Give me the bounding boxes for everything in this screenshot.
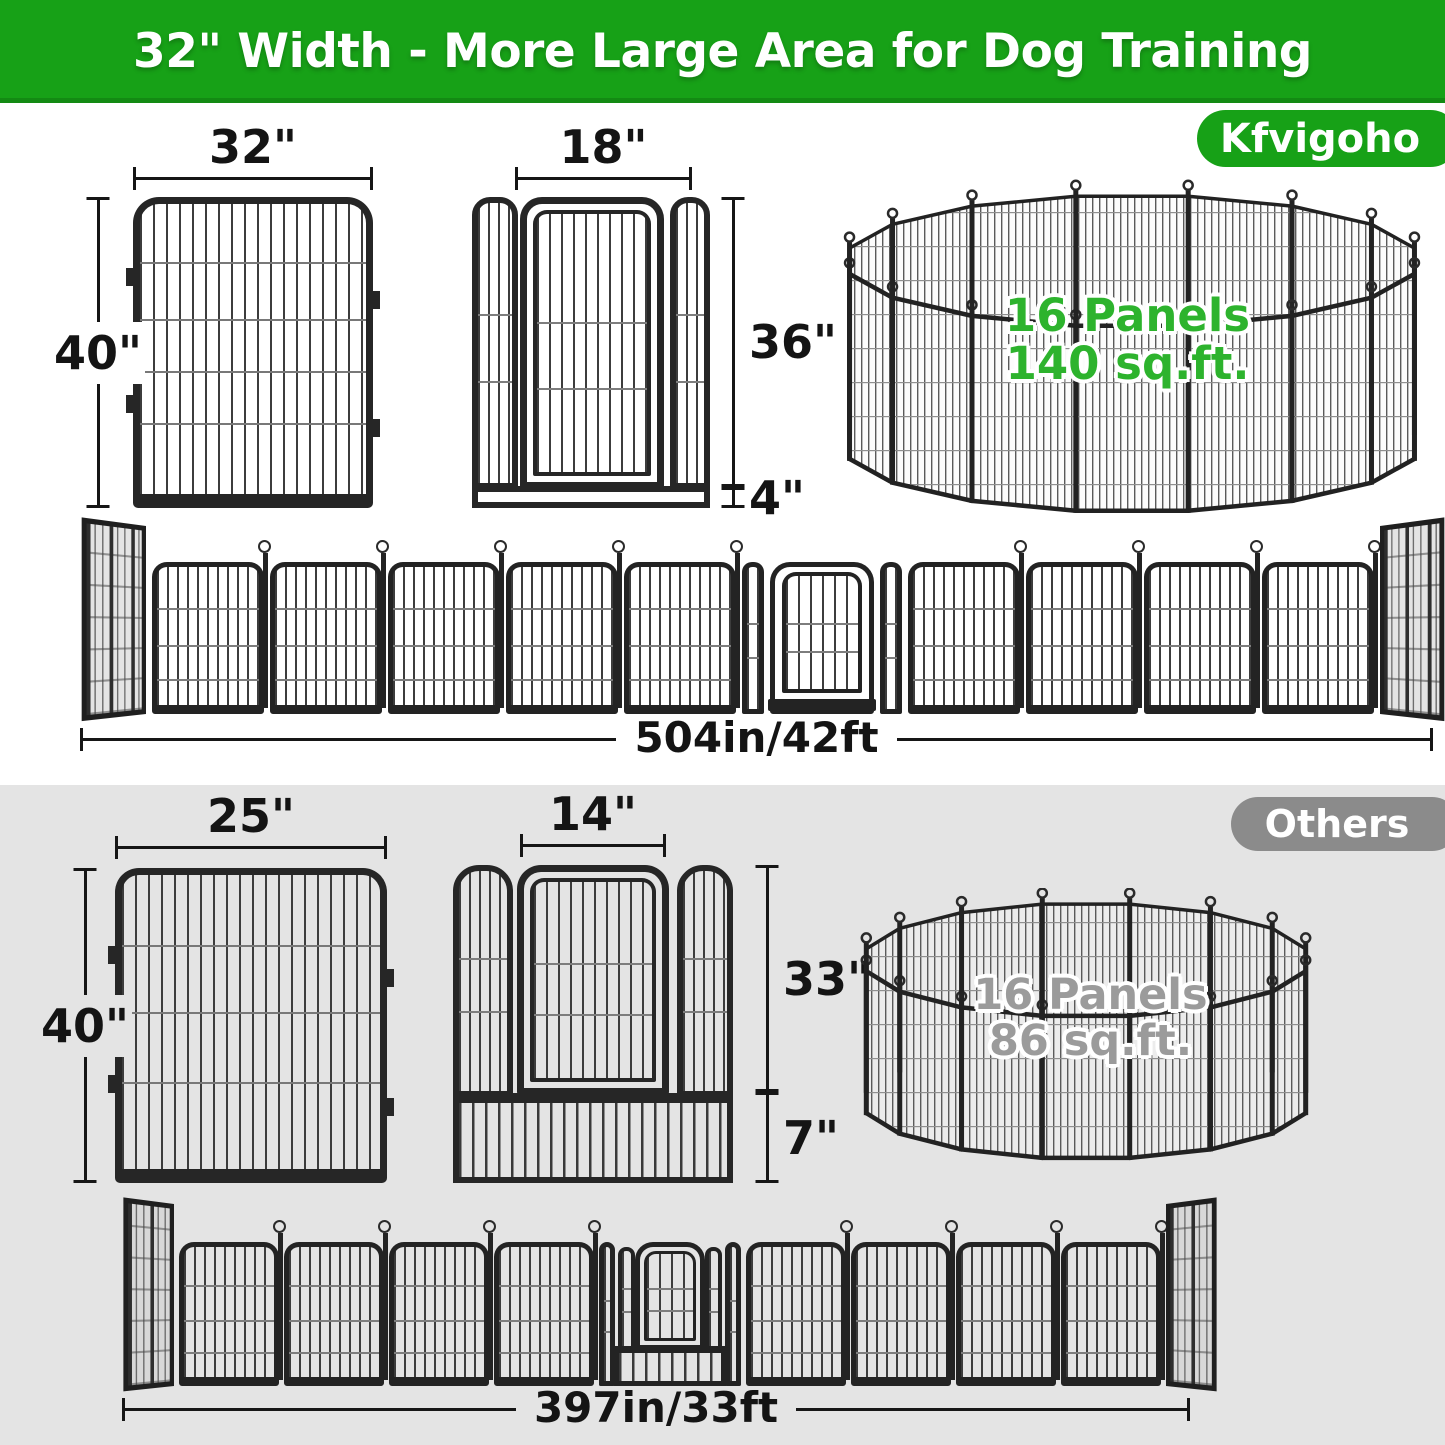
fence-panel — [908, 562, 1020, 714]
fence-panel — [851, 1242, 951, 1386]
kfvigoho-fence-row — [76, 522, 1444, 714]
hinge — [126, 268, 135, 286]
others-row-length-label: 397in/33ft — [516, 1387, 796, 1429]
fence-perspective-wall — [82, 517, 146, 721]
door-bottom-rail — [768, 699, 876, 711]
kfvigoho-door-height-label: 36" — [749, 319, 837, 365]
dimension-line — [520, 844, 666, 847]
door-bottom-rail — [472, 486, 710, 508]
kfvigoho-panel-diagram — [133, 197, 373, 508]
hinge — [385, 969, 394, 987]
fence-panel — [152, 562, 264, 714]
fence-panel — [956, 1242, 1056, 1386]
door-side-strip — [453, 865, 513, 1097]
kfvigoho-panel-height-label: 40" — [51, 322, 145, 384]
others-pen-label: 16 Panels 86 sq.ft. — [918, 972, 1263, 1064]
fence-panel — [494, 1242, 594, 1386]
fence-panel — [1144, 562, 1256, 714]
fence-perspective-wall — [123, 1197, 174, 1391]
product-infographic: 32" Width - More Large Area for Dog Trai… — [0, 0, 1445, 1445]
hinge — [371, 291, 380, 309]
others-pen-area-label: 86 sq.ft. — [918, 1018, 1263, 1064]
fence-connector-strip — [880, 562, 902, 714]
fence-panel — [270, 562, 382, 714]
fence-panel — [1026, 562, 1138, 714]
others-panel-diagram — [115, 868, 387, 1183]
others-panel-width-label: 25" — [115, 793, 387, 839]
kfvigoho-pen-label: 16 Panels 140 sq.ft. — [955, 292, 1300, 388]
banner: 32" Width - More Large Area for Dog Trai… — [0, 0, 1445, 103]
door-side-strip — [618, 1247, 635, 1350]
others-pen-panels-label: 16 Panels — [918, 972, 1263, 1018]
kfvigoho-row-length-dimension: 504in/42ft — [80, 716, 1433, 762]
others-badge-label: Others — [1265, 802, 1410, 846]
door-frame — [520, 197, 664, 489]
others-door-width-dimension: 14" — [520, 791, 666, 847]
door-frame — [517, 865, 669, 1095]
dimension-line — [766, 1092, 769, 1183]
fence-door-panel — [620, 1242, 720, 1386]
fence-door-panel — [770, 562, 874, 714]
kfvigoho-pen-area-label: 140 sq.ft. — [955, 340, 1300, 388]
door-leaf — [782, 572, 862, 693]
fence-connector-strip — [725, 1242, 741, 1386]
hinge — [126, 395, 135, 413]
fence-panel — [389, 1242, 489, 1386]
hinge — [385, 1098, 394, 1116]
dimension-line — [897, 738, 1430, 741]
others-door-diagram — [453, 865, 733, 1183]
dimension-line — [133, 177, 373, 180]
fence-panel — [179, 1242, 279, 1386]
fence-panel — [284, 1242, 384, 1386]
door-base-section — [614, 1346, 726, 1386]
fence-panel — [506, 562, 618, 714]
kfvigoho-row-length-label: 504in/42ft — [616, 717, 896, 759]
banner-title: 32" Width - More Large Area for Dog Trai… — [133, 24, 1312, 79]
others-door-width-label: 14" — [520, 791, 666, 837]
fence-panel — [624, 562, 736, 714]
fence-connector-strip — [742, 562, 764, 714]
hinge — [108, 1075, 117, 1093]
fence-perspective-wall — [1380, 517, 1444, 721]
dimension-line — [766, 865, 769, 1092]
others-row-length-dimension: 397in/33ft — [122, 1386, 1190, 1432]
fence-panel — [1061, 1242, 1161, 1386]
dimension-line — [83, 738, 616, 741]
door-side-strip — [670, 197, 710, 489]
dimension-line — [515, 177, 692, 180]
dimension-line — [125, 1408, 516, 1411]
fence-panel — [388, 562, 500, 714]
fence-panel — [1262, 562, 1374, 714]
door-leaf — [644, 1251, 696, 1341]
dimension-line — [732, 487, 735, 508]
door-side-strip — [472, 197, 518, 489]
door-side-strip — [677, 865, 733, 1097]
others-panel-height-label: 40" — [38, 995, 132, 1057]
dimension-line — [732, 197, 735, 487]
kfvigoho-panel-width-label: 32" — [133, 124, 373, 170]
brand-badge: Kfvigoho — [1197, 110, 1445, 167]
others-fence-row — [118, 1198, 1196, 1386]
dimension-line — [115, 846, 387, 849]
brand-badge-label: Kfvigoho — [1220, 116, 1420, 162]
kfvigoho-panel-width-dimension: 32" — [133, 124, 373, 180]
hinge — [108, 946, 117, 964]
fence-connector-strip — [599, 1242, 615, 1386]
others-door-bottom-label: 7" — [783, 1115, 839, 1161]
hinge — [371, 419, 380, 437]
others-panel-width-dimension: 25" — [115, 793, 387, 849]
dimension-tick — [1187, 1398, 1190, 1421]
kfvigoho-door-diagram — [472, 197, 710, 508]
kfvigoho-door-bottom-label: 4" — [749, 475, 805, 521]
others-badge: Others — [1231, 797, 1445, 851]
fence-panel — [746, 1242, 846, 1386]
door-leaf — [533, 210, 651, 476]
dimension-tick — [1430, 728, 1433, 751]
door-base-section — [453, 1093, 733, 1183]
kfvigoho-door-width-label: 18" — [515, 124, 692, 170]
door-leaf — [530, 878, 656, 1082]
kfvigoho-pen-panels-label: 16 Panels — [955, 292, 1300, 340]
door-frame — [635, 1242, 705, 1350]
fence-perspective-wall — [1166, 1197, 1217, 1391]
door-side-strip — [705, 1247, 722, 1350]
dimension-line — [796, 1408, 1187, 1411]
kfvigoho-door-width-dimension: 18" — [515, 124, 692, 180]
